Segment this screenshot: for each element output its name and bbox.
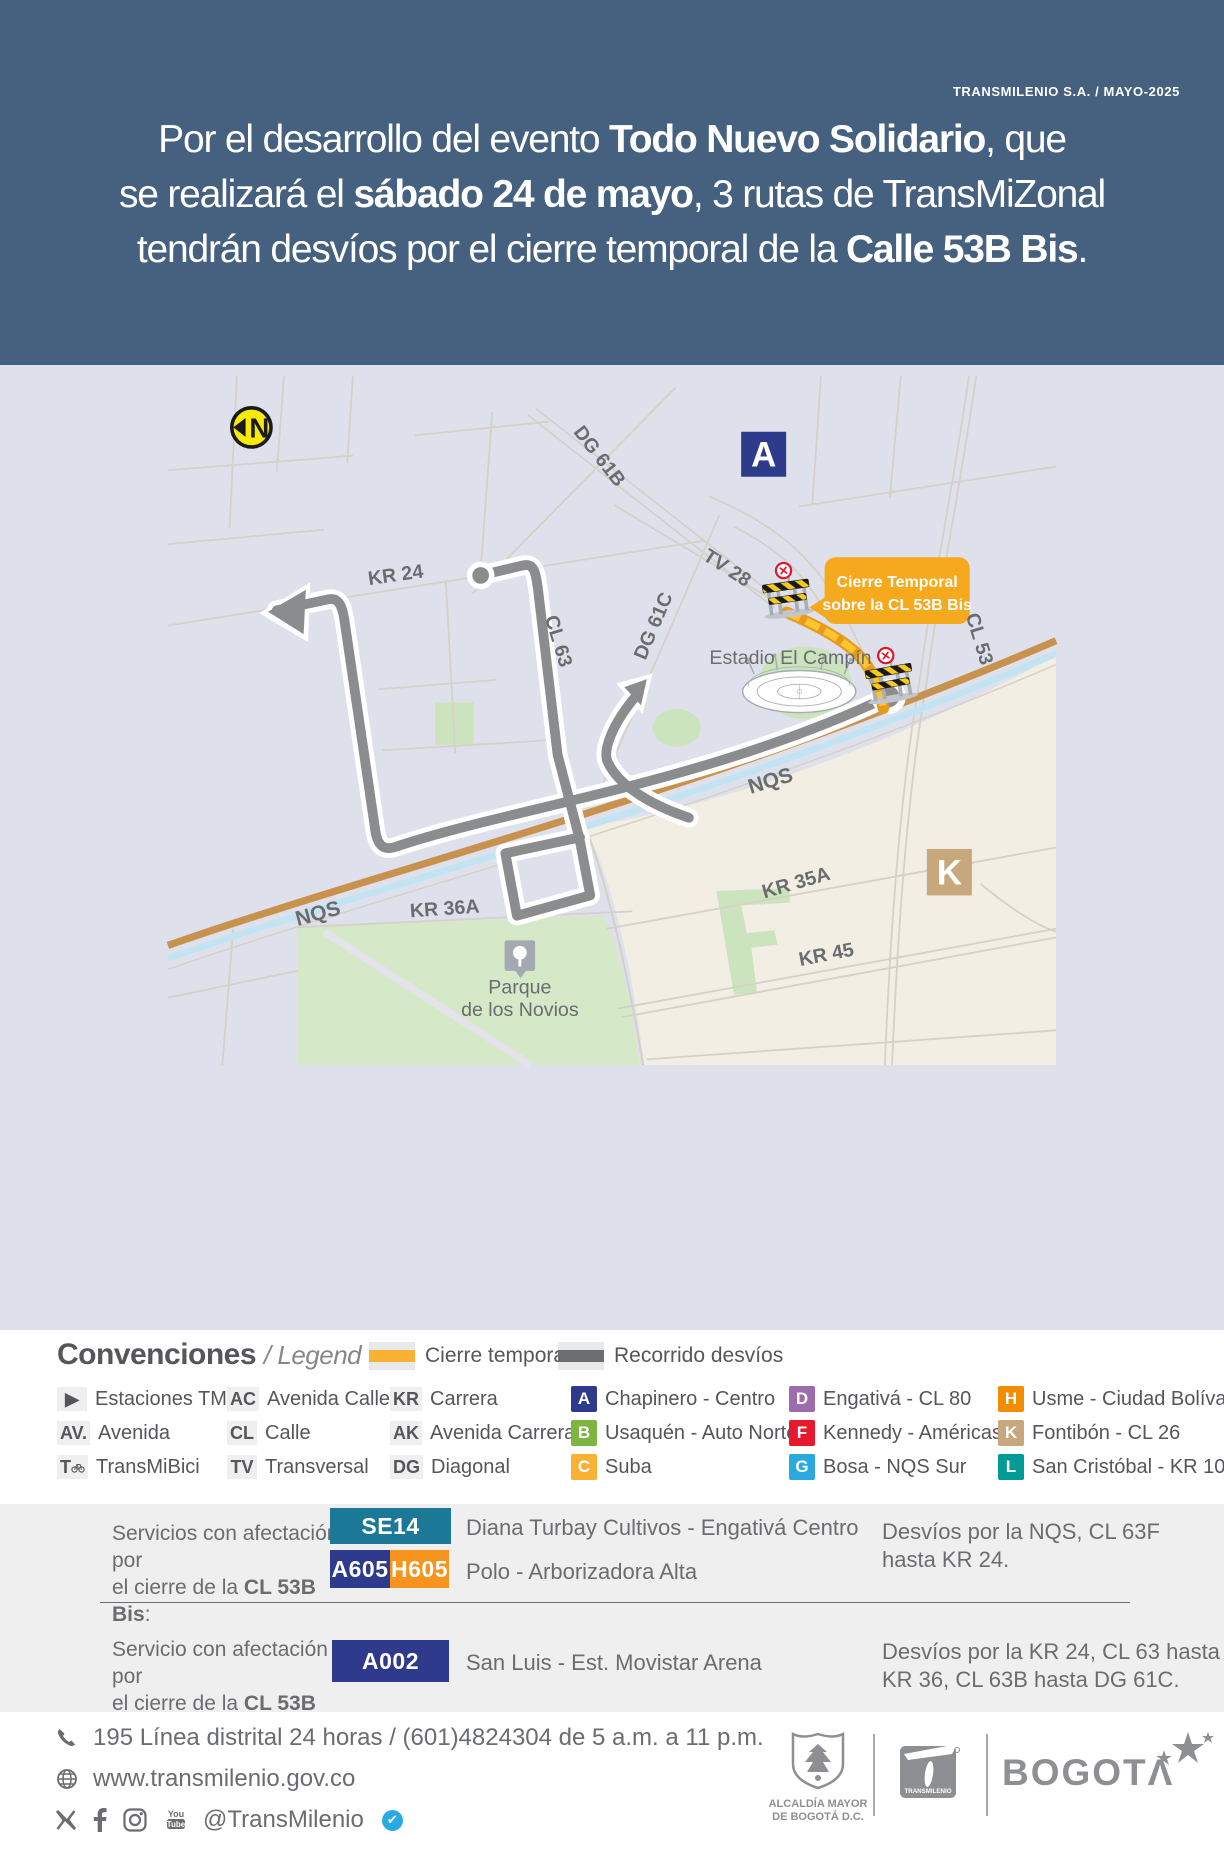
legend-zone-column-2: DEngativá - CL 80 FKennedy - Américas GB… [789,1386,1002,1480]
affected-services-panel: Servicios con afectación por el cierre d… [0,1504,1224,1712]
zone-chip-a: A [571,1386,597,1412]
svg-text:You: You [168,1809,184,1819]
route2-name: Polo - Arborizadora Alta [466,1559,697,1585]
verified-badge-icon: ✔ [382,1810,403,1831]
logo-divider-2 [986,1734,988,1816]
zone-chip-d: D [789,1386,815,1412]
header-banner: TRANSMILENIO S.A. / MAYO-2025 Por el des… [0,0,1224,365]
instagram-icon[interactable] [123,1808,147,1832]
detour-swatch-icon [558,1342,604,1370]
route3-name: San Luis - Est. Movistar Arena [466,1650,762,1676]
phone-icon [55,1726,79,1750]
transmilenio-logo: TRANSMILENIO [898,1738,962,1807]
legend-title: Convenciones / Legend [57,1338,361,1372]
legend-item-avenida: AV. Avenida [57,1420,227,1446]
zone-chip-f: F [789,1420,815,1446]
stadium-label: Estadio El Campín [709,647,871,669]
legend-item-transmibici: T TransMiBici [57,1454,227,1480]
park-area [297,916,639,1065]
svg-text:A: A [751,436,776,475]
legend-column-1: ▶ Estaciones TM AV. Avenida T TransMiBic… [57,1386,227,1480]
callout-line-2: sobre la CL 53B Bis [822,597,972,614]
closure-swatch-icon [369,1342,415,1370]
tm-station-icon: ▶ [57,1387,87,1411]
services-row1-label: Servicios con afectación por el cierre d… [112,1520,342,1628]
bike-icon: T [57,1455,88,1479]
alcaldia-crest-icon [789,1730,847,1790]
phone-text: 195 Línea distrital 24 horas / (601)4824… [93,1724,764,1752]
legend-column-3: KRCarrera AKAvenida Carrera DGDiagonal [390,1386,575,1480]
footer: 195 Línea distrital 24 horas / (601)4824… [0,1712,1224,1870]
social-handle[interactable]: @TransMilenio [203,1806,364,1834]
zone-marker-k: K [927,849,972,895]
zone-marker-a: A [741,432,786,477]
youtube-icon[interactable]: You Tube [163,1808,189,1832]
legend-section: Convenciones / Legend Cierre temporal Re… [0,1330,1224,1504]
zone-chip-g: G [789,1454,815,1480]
compass-icon: N [232,408,271,447]
transmilenio-logo-icon: TRANSMILENIO [898,1738,962,1802]
zone-chip-b: B [571,1420,597,1446]
transit-notice-poster: TRANSMILENIO S.A. / MAYO-2025 Por el des… [0,0,1224,1870]
title-line-2: se realizará el sábado 24 de mayo, 3 rut… [0,167,1224,222]
route-badge-h605: H605 [390,1550,449,1588]
park-label-line2: de los Novios [461,999,579,1021]
zone-chip-k: K [998,1420,1024,1446]
green-circle [653,709,701,747]
route-badge-a605: A605 [330,1550,390,1588]
social-row: You Tube @TransMilenio ✔ [55,1806,403,1834]
website-text[interactable]: www.transmilenio.gov.co [93,1765,355,1793]
title-line-3: tendrán desvíos por el cierre temporal d… [0,222,1224,277]
web-row: www.transmilenio.gov.co [55,1765,355,1793]
x-twitter-icon[interactable] [55,1809,77,1831]
alcaldia-logo: ALCALDÍA MAYOR DE BOGOTÁ D.C. [768,1730,868,1824]
logo-divider-1 [873,1734,875,1816]
zone-chip-h: H [998,1386,1024,1412]
legend-zone-column-3: HUsme - Ciudad Bolívar KFontibón - CL 26… [998,1386,1224,1480]
detour-note-2: Desvíos por la KR 24, CL 63 hasta KR 36,… [882,1638,1220,1694]
legend-title-es: Convenciones [57,1338,256,1371]
title-line-1: Por el desarrollo del evento Todo Nuevo … [0,112,1224,167]
route-start-dot [472,567,489,584]
zone-chip-c: C [571,1454,597,1480]
route1-name: Diana Turbay Cultivos - Engativá Centro [466,1515,859,1541]
svg-text:Tube: Tube [167,1820,186,1829]
svg-text:TRANSMILENIO: TRANSMILENIO [904,1788,951,1795]
facebook-icon[interactable] [93,1808,107,1832]
svg-text:N: N [249,413,269,444]
notice-title: Por el desarrollo del evento Todo Nuevo … [0,112,1224,277]
legend-swatch-closure: Cierre temporal [369,1342,570,1370]
detour-note-1: Desvíos por la NQS, CL 63F hasta KR 24. [882,1518,1160,1574]
legend-item-estaciones: ▶ Estaciones TM [57,1386,227,1412]
detour-map: Cierre Temporal sobre la CL 53B Bis A K … [0,365,1224,1330]
legend-zone-column-1: AChapinero - Centro BUsaquén - Auto Nort… [571,1386,797,1480]
phone-row: 195 Línea distrital 24 horas / (601)4824… [55,1724,764,1752]
park-label-line1: Parque [488,976,551,998]
services-divider [100,1602,1130,1603]
bogota-stars-icon [1150,1730,1220,1781]
legend-swatch-detour: Recorrido desvíos [558,1342,783,1370]
zone-chip-l: L [998,1454,1024,1480]
legend-column-2: ACAvenida Calle CLCalle TVTransversal [227,1386,390,1480]
route-badge-se14: SE14 [330,1508,451,1544]
legend-title-en: / Legend [264,1340,361,1370]
closure-callout: Cierre Temporal sobre la CL 53B Bis [809,557,972,624]
route-badge-a002: A002 [332,1640,449,1682]
callout-line-1: Cierre Temporal [837,574,958,591]
globe-icon [55,1767,79,1791]
publisher-credit: TRANSMILENIO S.A. / MAYO-2025 [953,84,1180,99]
map-canvas: Cierre Temporal sobre la CL 53B Bis A K … [0,365,1224,1330]
svg-text:K: K [937,854,962,893]
bogota-logo: BOGOTΛ [1002,1752,1174,1794]
